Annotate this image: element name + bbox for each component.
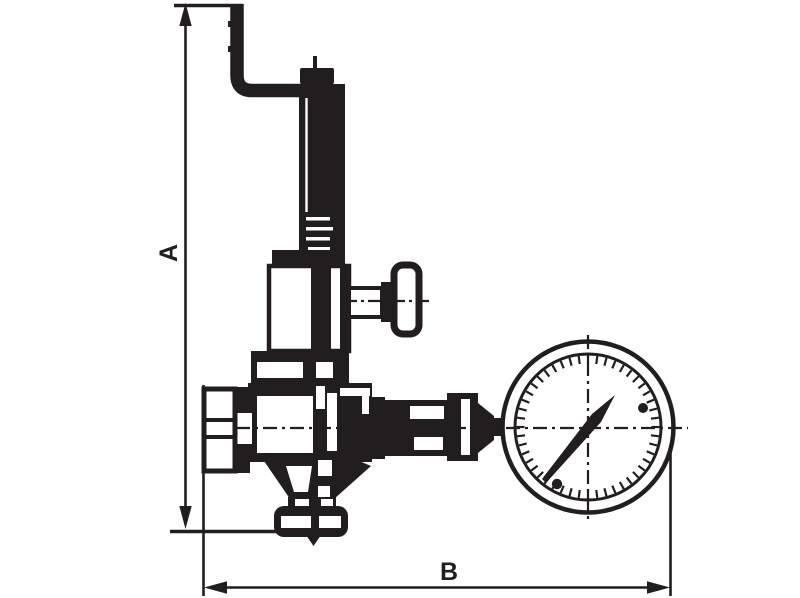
dim-b-arrow-right-icon [647,581,670,593]
flow-direction-arrow-icon [306,535,321,546]
valve-technical-drawing: A B [0,0,800,598]
valve-assembly [204,4,688,546]
body-slot-2 [327,393,337,451]
dimension-a-label: A [155,244,183,262]
pipe-tick-1 [228,21,233,27]
bonnet-bottom-flange [251,351,349,385]
bonnet-top-cap [272,250,335,266]
bonnet-shading-band [311,264,331,352]
outlet-flange-slot-right [319,516,341,528]
funnel-detail-window-1 [318,460,332,476]
gauge-tick [651,418,659,419]
flange-window-right [316,362,333,378]
gauge-tick [517,418,525,419]
gauge-screw-dot-1 [638,403,648,413]
inlet-hex-connector [204,387,252,473]
branch-pipe [349,288,382,317]
adjuster-cap [300,68,334,84]
handle-ring [394,265,419,334]
dim-a-arrow-down-icon [179,506,191,529]
funnel-detail-window-2 [318,486,330,498]
pipe-tick-2 [228,46,233,52]
gauge-screw-dot-2 [552,479,562,489]
valve-bonnet [269,264,349,352]
outlet-flange-slot-left [281,516,311,528]
hex-cap [204,389,235,471]
fitting-window-bottom [414,437,443,450]
outlet-pipe-window-2 [321,499,333,507]
body-window [257,396,313,453]
gauge-tick [651,435,659,436]
gauge-tick [596,356,597,364]
side-test-handle [344,265,433,334]
drawing-canvas: A B [0,0,800,598]
bottom-outlet [262,458,371,546]
gauge-tick [579,356,580,364]
outlet-funnel [262,458,371,499]
body-slot-4 [362,388,369,414]
flange-window-left [257,362,303,378]
fitting-window-top [410,406,444,419]
body-slot-1 [316,386,325,409]
gauge-tick [596,490,597,498]
outlet-pipe-window-1 [295,499,309,507]
gauge-tick [517,435,525,436]
gauge-tick [579,490,580,498]
bonnet-shell [269,266,349,351]
dim-b-arrow-left-icon [204,581,227,593]
dimension-b-label: B [440,558,458,586]
valve-body [248,383,372,462]
